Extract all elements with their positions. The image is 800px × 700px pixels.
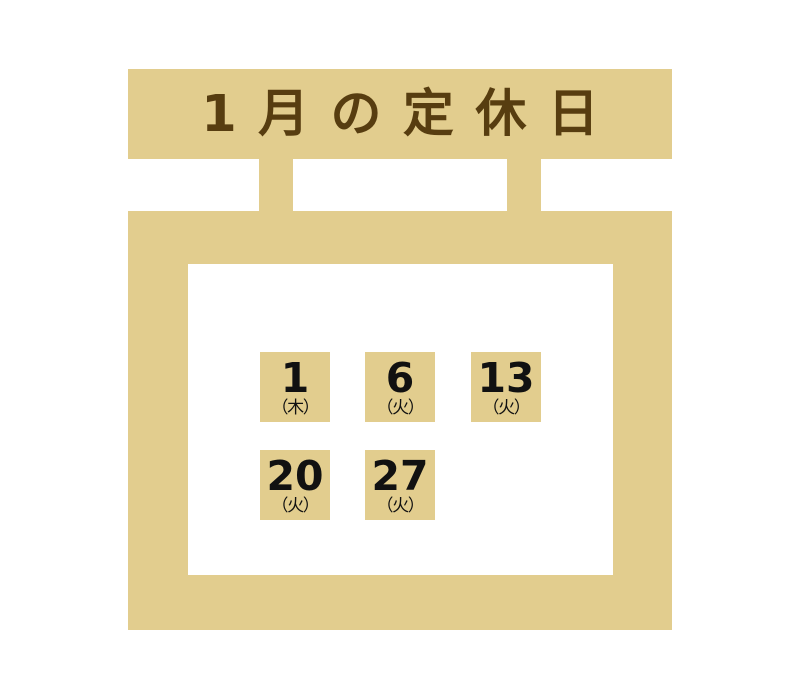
notice-graphic: 1月の定休日 1 （木） 6 （火） 13 （火） 20 （火） 27 （火） xyxy=(0,0,800,700)
holiday-tile: 20 （火） xyxy=(260,450,330,520)
holiday-tile: 13 （火） xyxy=(471,352,541,422)
holiday-day: 1 xyxy=(281,358,310,399)
holiday-weekday: （火） xyxy=(377,399,424,419)
holiday-tile: 6 （火） xyxy=(365,352,435,422)
holiday-weekday: （火） xyxy=(377,497,424,517)
holiday-weekday: （火） xyxy=(272,497,319,517)
holiday-day: 6 xyxy=(386,358,415,399)
holiday-day: 13 xyxy=(477,358,534,399)
holiday-weekday: （木） xyxy=(272,399,319,419)
title-banner: 1月の定休日 xyxy=(128,69,672,159)
holiday-tile: 1 （木） xyxy=(260,352,330,422)
holiday-weekday: （火） xyxy=(483,399,530,419)
holiday-tile: 27 （火） xyxy=(365,450,435,520)
holiday-day: 27 xyxy=(371,456,428,497)
page-title: 1月の定休日 xyxy=(180,89,620,140)
holiday-day: 20 xyxy=(266,456,323,497)
